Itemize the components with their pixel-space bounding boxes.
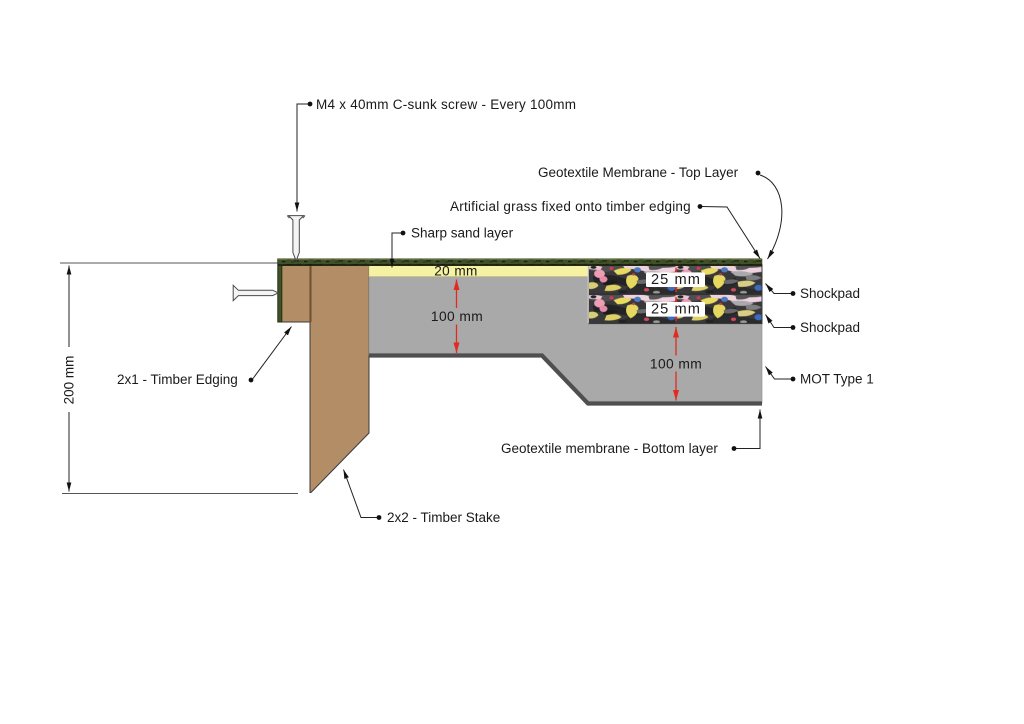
svg-text:M4 x 40mm C-sunk screw - Every: M4 x 40mm C-sunk screw - Every 100mm <box>316 97 576 112</box>
svg-text:2x1 - Timber Edging: 2x1 - Timber Edging <box>117 372 238 387</box>
svg-text:100 mm: 100 mm <box>431 309 483 324</box>
svg-text:Geotextile Membrane - Top Laye: Geotextile Membrane - Top Layer <box>538 165 739 180</box>
svg-text:MOT Type 1: MOT Type 1 <box>800 372 874 387</box>
svg-text:Shockpad: Shockpad <box>800 320 860 335</box>
svg-text:25 mm: 25 mm <box>651 302 701 318</box>
svg-text:200 mm: 200 mm <box>62 356 77 405</box>
svg-text:2x2 - Timber Stake: 2x2 - Timber Stake <box>387 510 500 525</box>
svg-text:Geotextile membrane - Bottom l: Geotextile membrane - Bottom layer <box>501 441 718 456</box>
svg-text:25 mm: 25 mm <box>651 272 701 288</box>
svg-text:Sharp sand layer: Sharp sand layer <box>411 226 514 241</box>
svg-text:Artificial grass fixed onto ti: Artificial grass fixed onto timber edgin… <box>450 199 691 214</box>
svg-text:Shockpad: Shockpad <box>800 286 860 301</box>
svg-text:100 mm: 100 mm <box>650 356 702 371</box>
svg-text:20 mm: 20 mm <box>434 264 478 279</box>
